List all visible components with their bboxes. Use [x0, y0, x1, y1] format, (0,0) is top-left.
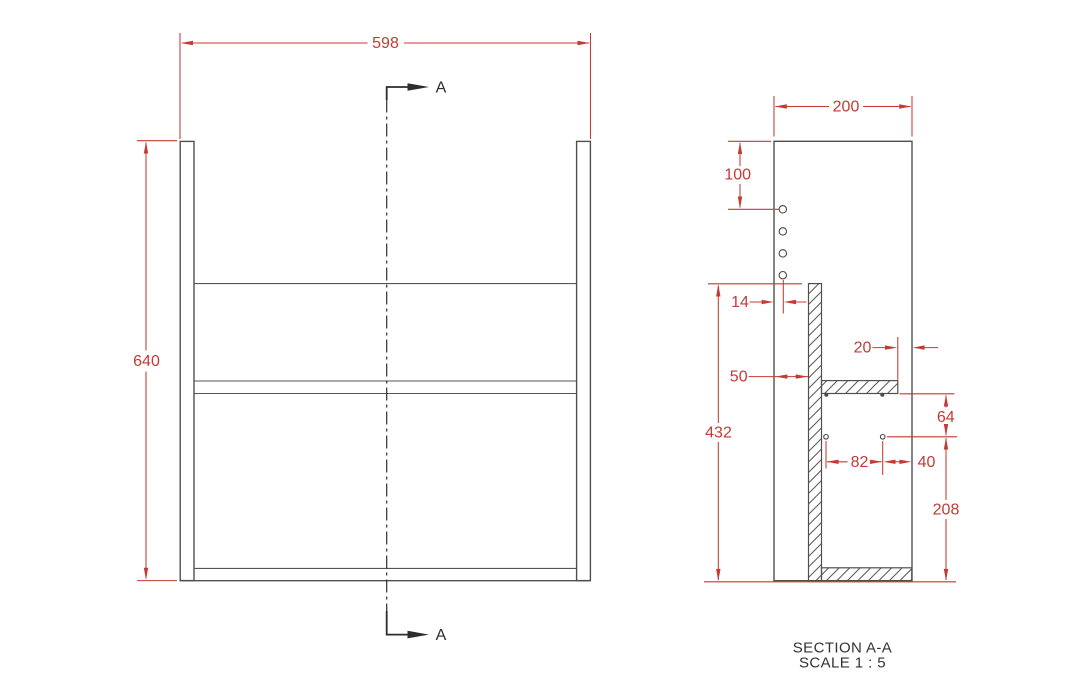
- dim-top-to-hole-label: 100: [724, 167, 751, 184]
- technical-drawing-svg: A A 598 640: [0, 0, 1091, 700]
- dim-depth-label: 200: [833, 99, 860, 116]
- section-label-bottom: A: [436, 627, 447, 644]
- dim-hole-to-front-label: 40: [918, 454, 936, 471]
- dim-shelf-to-hole-label: 64: [937, 409, 955, 426]
- dim-hole-inset-label: 14: [731, 294, 749, 311]
- screw-dot: [824, 393, 828, 397]
- section-caption-scale: SCALE 1 : 5: [799, 655, 886, 672]
- dim-front-width-label: 598: [372, 35, 399, 52]
- drawing-canvas: A A 598 640: [0, 0, 1091, 700]
- screw-dot: [880, 393, 884, 397]
- section-back-panel-cut: [809, 284, 822, 581]
- fixing-hole: [880, 435, 885, 440]
- dim-hole-spacing-label: 82: [851, 454, 869, 471]
- pin-hole: [779, 250, 786, 257]
- dim-front-height-label: 640: [133, 353, 160, 370]
- dim-back-inset-label: 50: [730, 369, 748, 386]
- pin-hole: [779, 272, 786, 279]
- dim-hole-to-bottom-label: 208: [933, 502, 960, 519]
- fixing-hole: [824, 435, 829, 440]
- pin-hole: [779, 206, 786, 213]
- dim-shelf-reveal-label: 20: [854, 340, 872, 357]
- section-shelf-cut: [822, 381, 898, 394]
- section-bottom-panel-cut: [822, 568, 912, 581]
- dim-back-height-label: 432: [705, 425, 732, 442]
- section-label-top: A: [436, 79, 447, 96]
- pin-hole: [779, 228, 786, 235]
- paper-background: [0, 0, 1091, 700]
